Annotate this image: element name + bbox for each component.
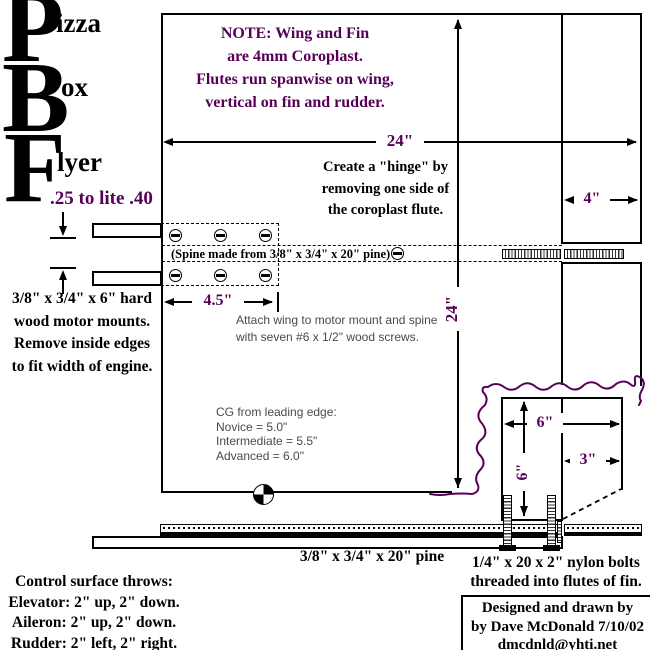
mount-note-line: wood motor mounts. — [1, 311, 163, 334]
mount-note-line: Remove inside edges — [1, 333, 163, 356]
elevator-hinge-line-upper — [561, 13, 563, 244]
dim-mount-offset-label: 4.5" — [192, 291, 244, 311]
screw-icon — [259, 269, 272, 282]
attach-note: Attach wing to motor mount and spine wit… — [236, 312, 437, 346]
dim-chord-label: 24" — [442, 287, 462, 331]
spine-side-view — [92, 536, 563, 549]
cg-note-line: Advanced = 6.0" — [216, 449, 337, 464]
arrowhead-up-icon — [520, 401, 528, 411]
hinge-note-line: removing one side of — [293, 179, 478, 201]
dim-end-tick — [277, 292, 279, 312]
cg-note-line: CG from leading edge: — [216, 405, 337, 420]
arrowhead-right-icon — [627, 138, 637, 146]
throws-line: Elevator: 2" up, 2" down. — [2, 593, 186, 614]
arrowhead-down-icon — [454, 478, 462, 488]
cg-note-line: Intermediate = 5.5" — [216, 434, 337, 449]
title-word-lyer: lyer — [57, 149, 102, 176]
note-line: are 4mm Coroplast. — [168, 45, 422, 68]
credit-line: dmcdnld@yhti.net — [463, 636, 650, 650]
fin-section-right-edge — [640, 262, 642, 386]
note-line: Flutes run spanwise on wing, — [168, 68, 422, 91]
elevator-bottom-edge — [561, 242, 642, 244]
nylon-bolt-rear — [547, 495, 556, 546]
mount-tick-bottom — [50, 267, 76, 269]
dim-line — [457, 20, 459, 488]
arrowhead-right-icon — [263, 298, 273, 306]
screw-icon — [259, 229, 272, 242]
arrowhead-up-icon — [454, 19, 462, 29]
throws-line: Rudder: 2" left, 2" right. — [2, 634, 186, 650]
wing-right-edge-upper — [640, 13, 642, 244]
throws-line: Control surface throws: — [2, 572, 186, 593]
arrowhead-right-icon — [610, 457, 620, 465]
title-word-izza: izza — [56, 10, 101, 37]
hinge-note-line: Create a "hinge" by — [293, 157, 478, 179]
arrowhead-left-icon — [564, 196, 574, 204]
spine-strip-right — [564, 249, 624, 259]
title-word-ox: ox — [61, 74, 88, 101]
hinge-note-line: the coroplast flute. — [293, 200, 478, 222]
fin-rear-tab — [557, 521, 562, 543]
dim-span-label: 24" — [376, 131, 424, 151]
arrowhead-right-icon — [628, 196, 638, 204]
spine-label: (Spine made from 3/8" x 3/4" x 20" pine) — [171, 247, 390, 261]
elevator-cross-section — [564, 524, 642, 536]
arrowhead-down-icon — [520, 506, 528, 516]
mount-note-line: to fit width of engine. — [1, 356, 163, 379]
motor-mount-bottom — [92, 271, 162, 286]
arrowhead-left-icon — [164, 298, 174, 306]
screw-icon — [214, 269, 227, 282]
arrowhead-right-icon — [610, 420, 620, 428]
mount-tick-top — [50, 237, 76, 239]
dim-fin-height-label: 6" — [513, 453, 533, 491]
wing-bottom-edge — [161, 491, 452, 493]
cg-note-line: Novice = 5.0" — [216, 420, 337, 435]
tear-line — [430, 376, 644, 495]
fin-section-top-edge — [561, 262, 642, 264]
wing-cross-section — [160, 524, 562, 536]
spine-strip-left — [502, 249, 561, 259]
nylon-bolt-front-head — [499, 545, 516, 551]
mount-note-line: 3/8" x 3/4" x 6" hard — [1, 288, 163, 311]
dim-elevator-label: 4" — [574, 189, 610, 209]
mount-arrow-down-line — [62, 212, 64, 226]
nylon-bolt-front — [503, 495, 512, 546]
wing-top-edge — [161, 13, 642, 15]
coroplast-note: NOTE: Wing and Fin are 4mm Coroplast. Fl… — [168, 22, 422, 114]
bolt-note-line: threaded into flutes of fin. — [450, 572, 650, 591]
fin-corner-cut-dashed — [563, 489, 621, 519]
note-line: vertical on fin and rudder. — [168, 91, 422, 114]
motor-mount-top — [92, 223, 162, 238]
dim-rudder-label: 3" — [570, 450, 606, 470]
arrowhead-left-icon — [163, 138, 173, 146]
screw-icon — [214, 229, 227, 242]
arrowhead-up-icon — [59, 270, 67, 280]
attach-note-line: with seven #6 x 1/2" wood screws. — [236, 329, 437, 346]
attach-note-line: Attach wing to motor mount and spine — [236, 312, 437, 329]
credit-box: Designed and drawn by by Dave McDonald 7… — [461, 595, 650, 650]
hinge-note: Create a "hinge" by removing one side of… — [293, 157, 478, 222]
control-throws-note: Control surface throws: Elevator: 2" up,… — [2, 572, 186, 650]
arrowhead-left-icon — [504, 420, 514, 428]
screw-icon — [391, 247, 404, 260]
screw-icon — [169, 269, 182, 282]
credit-line: by Dave McDonald 7/10/02 — [463, 618, 650, 637]
fin-hinge-line-upper — [561, 262, 563, 385]
throws-line: Aileron: 2" up, 2" down. — [2, 613, 186, 634]
note-line: NOTE: Wing and Fin — [168, 22, 422, 45]
bolt-note-line: 1/4" x 20 x 2" nylon bolts — [450, 553, 650, 572]
dim-fin-width-label: 6" — [527, 413, 563, 433]
cg-symbol-icon — [253, 484, 274, 505]
nylon-bolt-note: 1/4" x 20 x 2" nylon bolts threaded into… — [450, 553, 650, 591]
credit-line: Designed and drawn by — [463, 599, 650, 618]
cg-note: CG from leading edge: Novice = 5.0" Inte… — [216, 405, 337, 463]
arrowhead-down-icon — [59, 226, 67, 236]
engine-range-label: .25 to lite .40 — [50, 188, 153, 210]
motor-mount-note: 3/8" x 3/4" x 6" hard wood motor mounts.… — [1, 288, 163, 378]
pizza-box-flyer-plan: P izza B ox F lyer .25 to lite .40 NOTE:… — [0, 0, 650, 650]
screw-icon — [169, 229, 182, 242]
nylon-bolt-rear-head — [543, 545, 560, 551]
fin-right-edge — [621, 397, 623, 490]
